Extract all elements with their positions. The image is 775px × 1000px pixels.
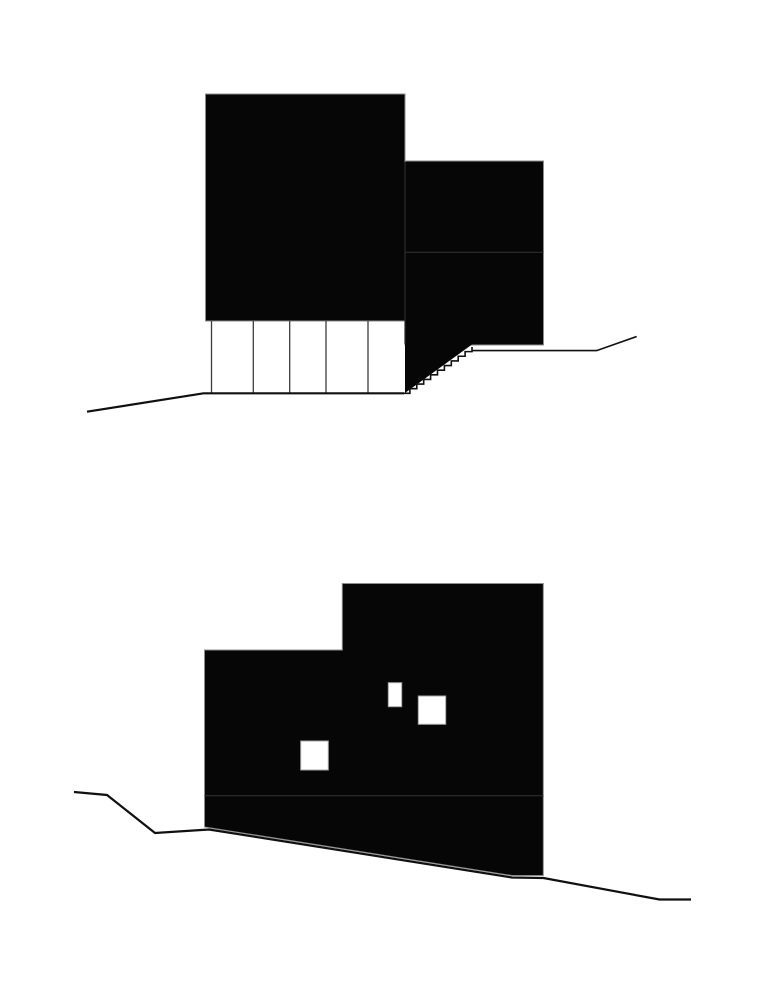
building-mass [205,584,544,876]
window-2 [418,696,445,724]
lower-elevation [74,584,691,900]
window-1 [388,683,401,707]
stair-wedge [405,344,472,393]
ground-line-left [87,393,404,411]
upper-elevation [87,94,637,412]
elevation-drawing-svg [0,0,775,1000]
window-3 [301,741,329,770]
side-volume [405,161,544,345]
main-volume [206,94,406,321]
drawing-canvas [0,0,775,1000]
